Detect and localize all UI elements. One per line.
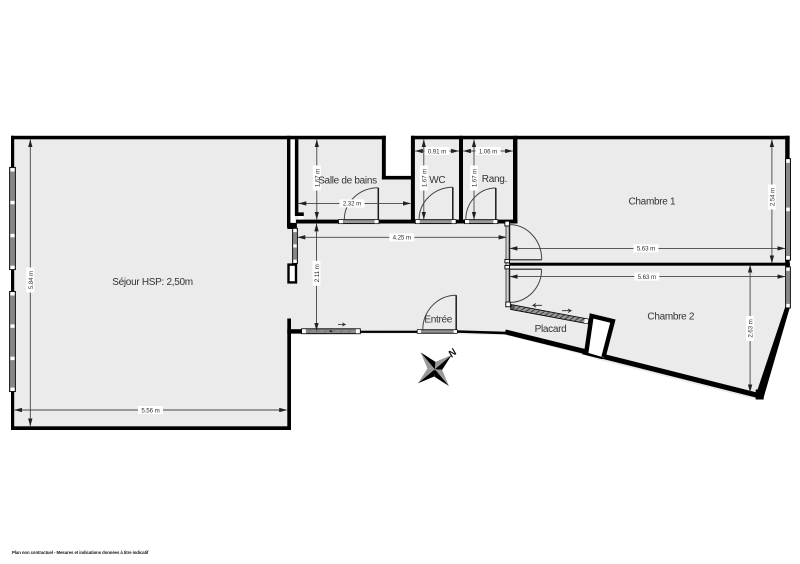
svg-text:5.63 m: 5.63 m: [638, 274, 656, 281]
svg-text:Chambre 2: Chambre 2: [647, 311, 695, 322]
svg-text:1.67 m: 1.67 m: [421, 169, 428, 187]
svg-text:5.63 m: 5.63 m: [637, 246, 655, 253]
svg-text:Salle de bains: Salle de bains: [318, 176, 377, 187]
svg-text:2.63 m: 2.63 m: [748, 319, 755, 337]
svg-text:2.32 m: 2.32 m: [343, 201, 361, 208]
svg-text:2.11 m: 2.11 m: [314, 264, 321, 282]
svg-text:4.25 m: 4.25 m: [393, 235, 411, 242]
svg-text:Chambre 1: Chambre 1: [629, 196, 677, 207]
svg-text:WC: WC: [429, 175, 445, 186]
svg-text:5.56 m: 5.56 m: [141, 407, 159, 414]
svg-text:0.91 m: 0.91 m: [428, 148, 446, 155]
svg-text:Séjour HSP: 2,50m: Séjour HSP: 2,50m: [112, 277, 193, 288]
svg-text:2.54 m: 2.54 m: [770, 188, 777, 206]
svg-text:Rang.: Rang.: [482, 174, 507, 185]
svg-text:1.67 m: 1.67 m: [472, 169, 479, 187]
svg-text:Placard: Placard: [535, 324, 567, 335]
svg-text:Entrée: Entrée: [424, 314, 452, 325]
svg-text:1.06 m: 1.06 m: [479, 148, 497, 155]
svg-text:5.84 m: 5.84 m: [28, 271, 35, 289]
svg-text:Plan non contractuel - Mesures: Plan non contractuel - Mesures et indica…: [12, 550, 149, 555]
